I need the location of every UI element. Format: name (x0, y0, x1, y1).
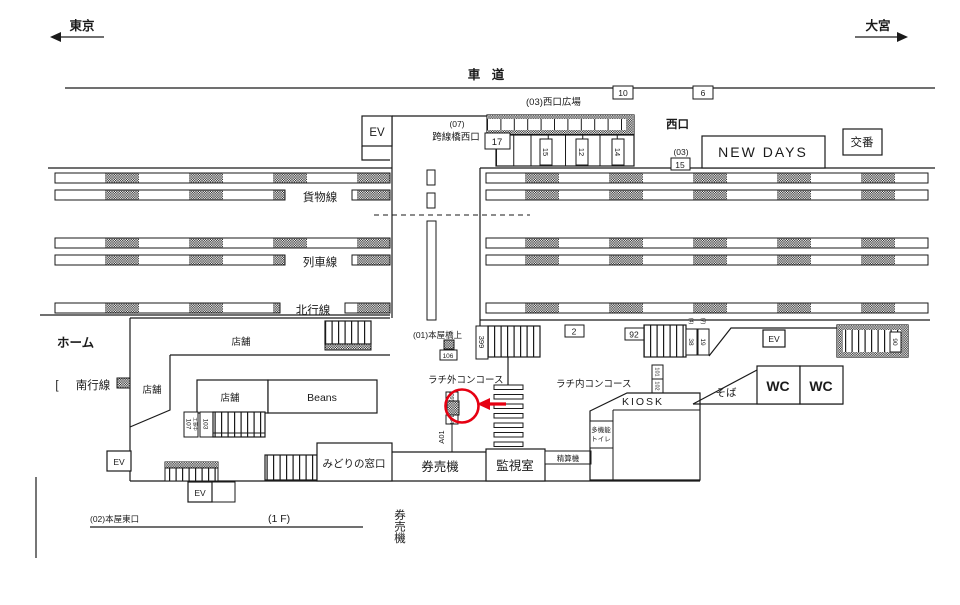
marker-92: 92 (629, 330, 639, 340)
fare-adjust-label: 精算機 (557, 453, 580, 463)
marker-107-note: 工事中 (192, 417, 199, 431)
ticket-machines-label: 券売機 (421, 459, 459, 474)
marker-90: 90 (891, 338, 898, 346)
marker-101: 101 (654, 367, 660, 376)
east-staircase (644, 325, 686, 357)
multi-toilet-label-1: 多機能 (591, 425, 611, 434)
wc-1-label: WC (766, 378, 789, 394)
floor-label: (1 F) (268, 513, 290, 525)
marker-399: 399 (477, 336, 486, 349)
marker-19: 19 (699, 338, 706, 346)
platform-label: ホーム (57, 336, 95, 350)
ev-a-label: EV (113, 457, 125, 467)
wc-2-label: WC (809, 378, 832, 394)
marker-38: 38 (687, 338, 694, 346)
ev-east-label: EV (768, 334, 780, 344)
concourse-outside-label: ラチ外コンコース (428, 374, 504, 386)
station-floor-map: 東京 大宮 車 道 10 6 (03)西口広場 (0, 0, 960, 605)
track-freight-label: 貨物線 (303, 190, 338, 204)
marker-a01: A01 (437, 430, 446, 443)
note-7: (7) (700, 318, 706, 325)
track-train-label: 列車線 (303, 255, 338, 269)
shop-lower-label: 店舗 (220, 392, 240, 404)
bridge-staircase (488, 326, 540, 357)
new-days-label: NEW DAYS (718, 144, 808, 160)
direction-omiya: 大宮 (855, 18, 908, 42)
marker-106-sign (444, 340, 454, 349)
kiosk-block-inner-lines (613, 410, 700, 480)
monitor-room-label: 監視室 (496, 458, 534, 473)
marker-107: 107 (185, 419, 192, 430)
soba-label: そば (716, 387, 737, 399)
marker-102: 102 (654, 381, 660, 390)
upper-band-staircase (325, 321, 371, 350)
marker-6: 6 (701, 88, 706, 98)
direction-omiya-label: 大宮 (865, 18, 890, 33)
east-exit-label: (02)本屋東口 (90, 514, 139, 524)
note-4: (4) (688, 318, 694, 325)
track-bars (55, 173, 928, 313)
shop-upper-label: 店舗 (231, 336, 251, 348)
marker-103: 103 (202, 419, 209, 430)
direction-tokyo-label: 東京 (69, 18, 95, 33)
beans-label: Beans (307, 392, 337, 404)
ev-b-landing (212, 482, 235, 502)
west-exit-code: (03) (673, 147, 688, 157)
ev-west-label: EV (369, 127, 385, 139)
bridge-over-label: (01)本屋橋上 (413, 330, 463, 340)
track-north-label: 北行線 (296, 303, 331, 317)
shop-left-label: 店舗 (142, 384, 162, 396)
roadway-label: 車 道 (468, 67, 508, 82)
marker-15: 15 (675, 160, 685, 170)
marker-2: 2 (572, 327, 577, 337)
overpass-code: (07) (449, 119, 464, 129)
multi-toilet-box (590, 421, 613, 448)
midori-staircase (265, 455, 317, 480)
ticket-machines-vertical-label: 券売機 (393, 508, 406, 544)
track-south-bracket: [ (55, 380, 59, 392)
ev-b-label: EV (194, 488, 206, 498)
ticket-gates (494, 385, 523, 447)
multi-toilet-label-2: トイレ (591, 436, 611, 443)
concourse-inside-label: ラチ内コンコース (556, 378, 632, 390)
marker-s12: 12 (577, 148, 586, 156)
midori-office-label: みどりの窓口 (323, 457, 386, 470)
koban-label: 交番 (851, 135, 874, 149)
west-plaza-label: (03)西口広場 (526, 96, 581, 108)
track-south-label: 南行線 (76, 378, 111, 392)
direction-tokyo: 東京 (50, 18, 104, 42)
marker-17: 17 (492, 137, 503, 148)
omiya-arrow-head-icon (897, 32, 908, 42)
kiosk-label: KIOSK (622, 396, 664, 408)
tokyo-arrow-head-icon (50, 32, 61, 42)
corridor-pillars (427, 170, 436, 320)
south-line-marker (117, 378, 130, 388)
marker-s15: 15 (541, 148, 550, 156)
marker-s14: 14 (613, 148, 622, 156)
west-exit-label: 西口 (666, 118, 689, 131)
marker-106: 106 (443, 353, 454, 360)
horizontal-staircase (165, 462, 218, 481)
overpass-name: 跨線橋西口 (432, 131, 480, 143)
marker-10: 10 (618, 88, 628, 98)
